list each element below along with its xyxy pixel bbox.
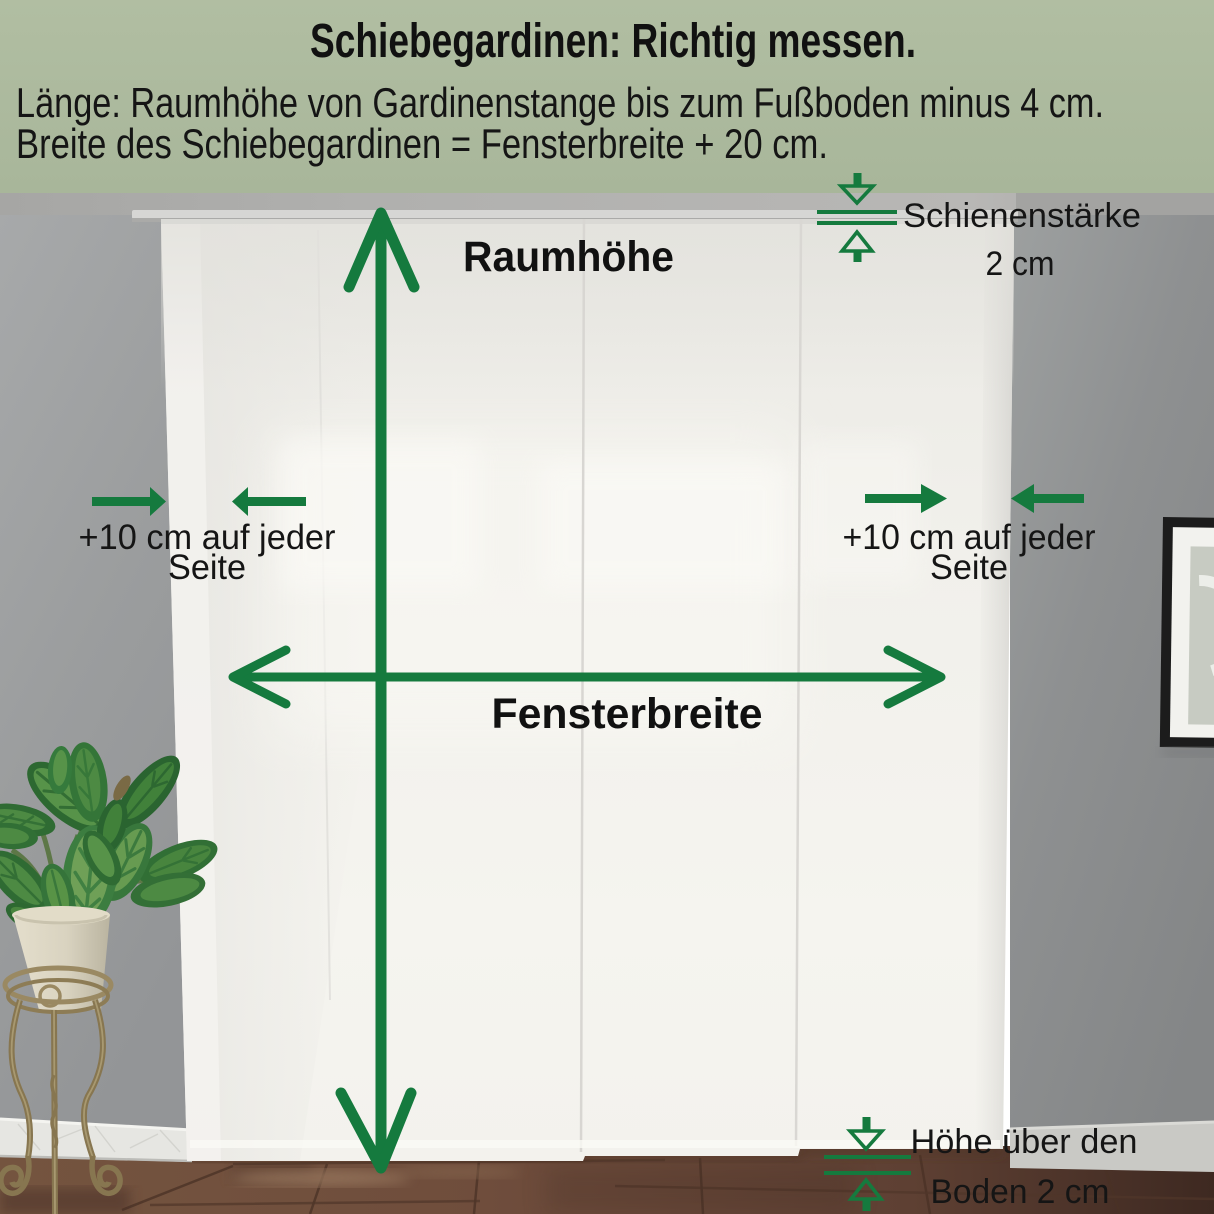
svg-text:Raumhöhe: Raumhöhe	[463, 233, 674, 281]
svg-text:Seite: Seite	[168, 548, 246, 587]
svg-text:Schienenstärke: Schienenstärke	[903, 197, 1141, 235]
svg-text:2 cm: 2 cm	[986, 245, 1055, 283]
svg-text:Fensterbreite: Fensterbreite	[492, 690, 763, 738]
svg-text:Seite: Seite	[930, 548, 1008, 587]
svg-text:Höhe über den: Höhe über den	[911, 1123, 1138, 1161]
svg-text:Boden 2 cm: Boden 2 cm	[931, 1173, 1110, 1211]
svg-text:Breite des Schiebegardinen = F: Breite des Schiebegardinen = Fensterbrei…	[16, 120, 828, 167]
svg-text:Länge: Raumhöhe von Gardinenst: Länge: Raumhöhe von Gardinenstange bis z…	[16, 79, 1104, 126]
svg-text:Schiebegardinen: Richtig messe: Schiebegardinen: Richtig messen.	[310, 15, 916, 68]
